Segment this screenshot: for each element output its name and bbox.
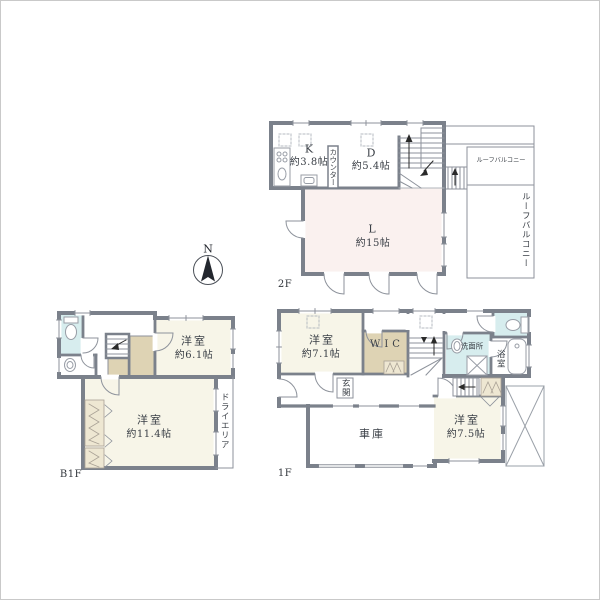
room-label-bedroom-71: 洋室 [309,335,335,346]
room-label-counter: カウンター [329,148,337,186]
room-label-bathroom: 浴室 [496,350,505,369]
room-size-living: 約15帖 [356,239,391,249]
room-label-kitchen: K [305,144,315,155]
floor-plan-b1f [57,311,236,468]
room-label-living: L [368,224,377,235]
washbasin-icon-b1f [65,359,76,372]
floor-label-b1f: B1F [60,470,82,480]
floor-plan-sheet: N K 約3.8帖 カウンター D 約5.4帖 L 約15帖 ルーフバルコニー … [0,0,600,600]
floor-label-1f: 1F [278,469,292,479]
room-label-dining: D [367,148,378,159]
room-label-washroom: 洗面所 [461,342,484,350]
room-size-bedroom-61: 約6.1帖 [175,351,213,361]
exterior-stairs-icon [444,167,467,189]
1f-stairs-down-icon [453,378,479,396]
floor-label-2f: 2F [278,280,292,290]
toilet-icon-b1f [64,317,78,340]
room-size-kitchen: 約3.8帖 [290,158,328,168]
1f-stairs-icon [409,336,442,375]
exterior-crossed-area [506,386,544,466]
compass-north-label: N [203,244,213,255]
room-label-bedroom-75: 洋室 [454,415,480,426]
room-label-bedroom-114: 洋室 [137,415,163,426]
b1f-stairs-icon [106,339,129,354]
room-size-bedroom-71: 約7.1帖 [302,350,340,360]
room-size-dining: 約5.4帖 [352,162,390,172]
room-label-roof-balcony-side: ルーフバルコニー [521,192,530,268]
compass-icon [194,256,223,285]
bathtub-icon [508,339,526,374]
room-label-wic: WIC [370,340,404,350]
room-label-roof-balcony-top: ルーフバルコニー [476,158,525,164]
floor-plan-drawing [1,1,600,600]
room-label-entrance: 玄関 [341,379,350,398]
room-label-garage: 車庫 [359,429,385,440]
room-label-dry-area: ドライエリア [220,393,229,450]
room-label-bedroom-61: 洋室 [181,336,207,347]
room-size-bedroom-114: 約11.4帖 [126,430,171,440]
room-size-bedroom-75: 約7.5帖 [447,430,485,440]
washing-machine-icon [467,356,487,375]
